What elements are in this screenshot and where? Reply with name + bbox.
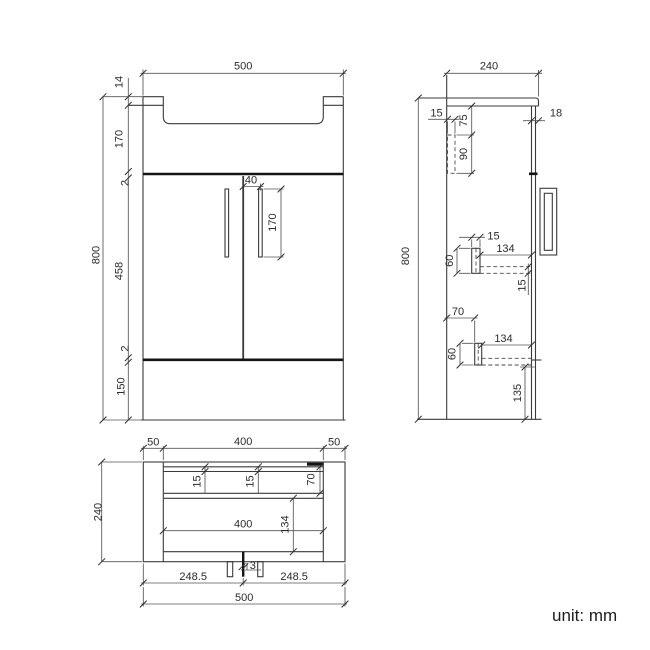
plan-top-left-label: 50	[147, 436, 159, 448]
plan-inset-a-label: 15	[191, 475, 203, 487]
plan-right-handle	[258, 562, 263, 577]
lower-bottom-label: 135	[512, 384, 524, 402]
front-height-label: 800	[90, 246, 102, 264]
plan-top-right-label: 50	[328, 436, 340, 448]
technical-drawing-page: 500 14 170 2 458 2 150 800 40	[0, 0, 650, 650]
plan-overall-width-label: 500	[235, 592, 253, 604]
wall-bracket-width-label: 15	[430, 107, 442, 119]
dim-2-upper: 2	[119, 180, 131, 186]
upper-rail-thickness-dim: 15	[516, 263, 531, 295]
plan-inner-width-dim: 400	[160, 518, 327, 534]
front-left-chain: 14 170 2 458 2 150	[113, 76, 131, 424]
upper-bracket-height-label: 60	[444, 255, 456, 267]
dim-2-lower: 2	[119, 345, 131, 351]
overhang-dim: 18	[523, 107, 562, 124]
plan-interior-lines	[163, 467, 323, 552]
side-height-label: 800	[400, 247, 412, 265]
lower-offset-label: 70	[452, 306, 464, 318]
plan-corner-label: 70	[305, 473, 317, 485]
plan-top-mid-label: 400	[234, 436, 252, 448]
wall-bracket-width-dim: 15	[428, 107, 459, 133]
upper-bracket-height-dim: 60	[444, 245, 471, 277]
lower-rail-hidden	[478, 343, 531, 365]
plan-overall-width-dim: 500	[140, 587, 348, 607]
dim-14: 14	[113, 76, 125, 88]
front-width-dim: 500	[140, 60, 347, 95]
plan-door-gap-label: 3	[250, 560, 256, 572]
lower-bracket-height-dim: 60	[446, 340, 473, 369]
dim-150: 150	[115, 377, 127, 395]
front-view: 500 14 170 2 458 2 150 800 40	[90, 60, 346, 423]
unit-note: unit: mm	[552, 606, 617, 625]
plan-left-handle	[227, 562, 232, 577]
plan-inner-width-label: 400	[234, 518, 252, 530]
bracket-top-label: 75	[458, 114, 470, 126]
plan-view: 50 400 50 240 15 15 70 400	[92, 436, 348, 607]
technical-drawing-canvas: 500 14 170 2 458 2 150 800 40	[0, 0, 650, 650]
side-width-label: 240	[480, 60, 498, 72]
handle-length-label: 170	[267, 213, 279, 231]
upper-bracket-width-dim: 15	[459, 230, 500, 247]
side-handle-inner	[544, 193, 552, 250]
plan-door-right-label: 248.5	[280, 571, 308, 583]
left-door-handle	[225, 189, 229, 257]
bracket-len-label: 90	[458, 148, 470, 160]
upper-rail-thickness-label: 15	[516, 279, 528, 291]
side-front-edges	[532, 106, 536, 419]
lower-rail-length-label: 134	[494, 333, 512, 345]
plan-depth-dim: 240	[92, 459, 142, 565]
lower-rail-length-dim: 134	[478, 333, 535, 348]
plan-front-depth-label: 134	[280, 515, 292, 533]
plan-front-depth-dim: 134	[280, 495, 297, 555]
handle-offset-label: 40	[245, 174, 257, 186]
lower-offset-dim: 70	[443, 306, 478, 342]
right-door-handle	[259, 189, 263, 257]
handle-length-dim: 170	[264, 186, 285, 261]
upper-rail-length-label: 134	[496, 243, 514, 255]
countertop-profile	[418, 98, 538, 106]
plan-inset-b-label: 15	[245, 475, 257, 487]
dim-458: 458	[113, 262, 125, 280]
plan-depth-label: 240	[92, 503, 104, 521]
wall-bracket-hidden	[448, 135, 456, 173]
lower-bracket-height-label: 60	[446, 348, 458, 360]
side-view: 240 800 15 75 90 18	[400, 60, 562, 422]
side-height-dim: 800	[400, 95, 422, 423]
plan-back-inset-dims: 15 15 70	[191, 463, 323, 496]
basin-outline	[143, 97, 343, 124]
front-width-label: 500	[234, 60, 252, 72]
side-handle-outer	[540, 188, 557, 255]
side-width-dim: 240	[443, 60, 542, 96]
wall-bracket-pos-dims: 75 90	[457, 103, 476, 177]
overhang-label: 18	[550, 107, 562, 119]
plan-door-left-label: 248.5	[179, 571, 207, 583]
upper-bracket-width-label: 15	[487, 230, 499, 242]
dim-170: 170	[113, 130, 125, 148]
plan-side-panels	[163, 462, 323, 562]
upper-rail-length-dim: 134	[477, 243, 535, 258]
plan-top-dims: 50 400 50	[140, 436, 348, 460]
